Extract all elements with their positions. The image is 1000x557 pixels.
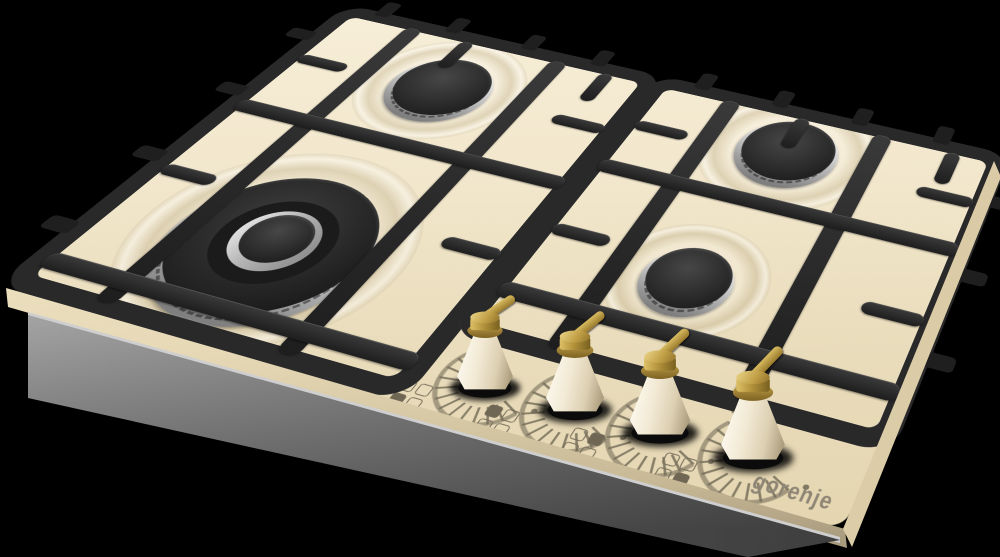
knob-brass-cap-top: [736, 371, 770, 384]
knob-brass-cap-top: [560, 330, 591, 342]
knob-brass-cap-top: [644, 350, 676, 363]
knob-layer: [0, 0, 1000, 557]
knob-brass-cap-top: [470, 312, 499, 324]
gas-hob-product-image: gorenje: [0, 0, 1000, 557]
